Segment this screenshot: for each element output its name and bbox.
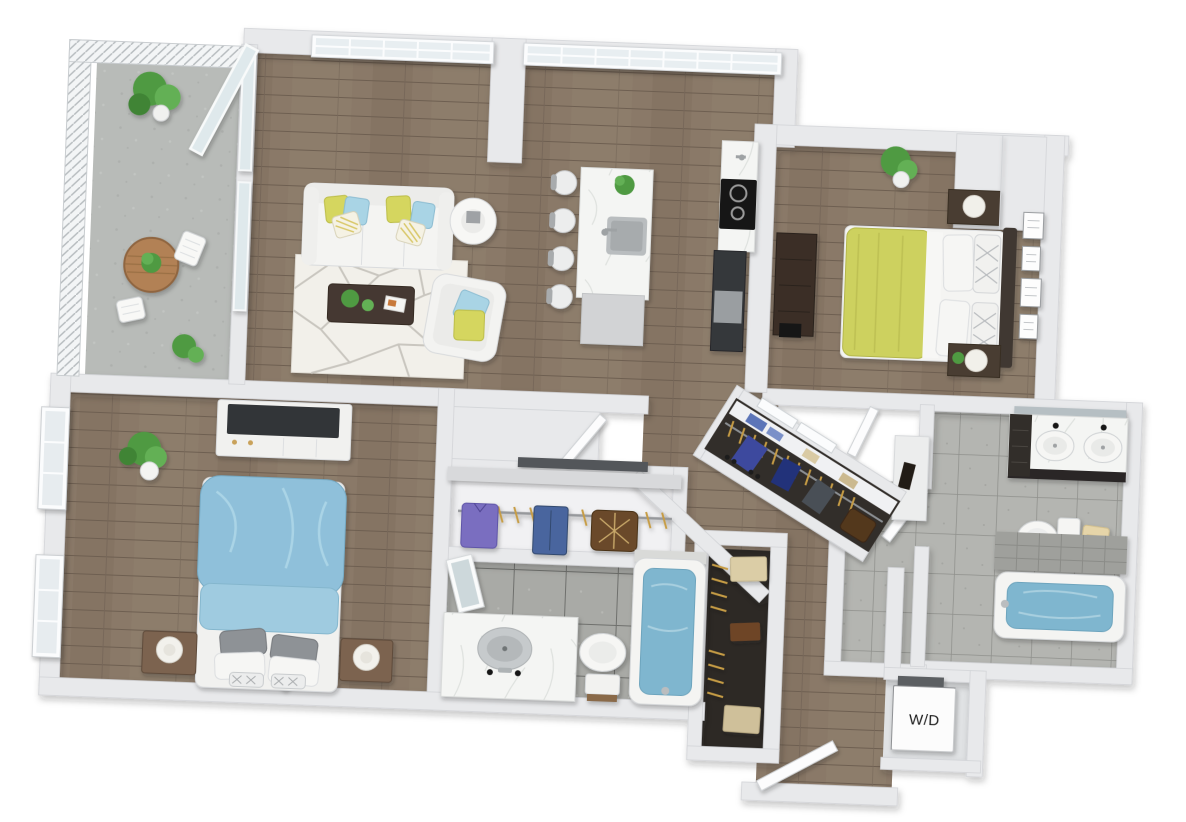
- blue-duvet-fold: [199, 583, 339, 634]
- sofa-arm-right: [436, 192, 454, 271]
- bed-pillow-white: [943, 235, 974, 291]
- dresser-item: [779, 323, 802, 338]
- master-bathtub: [994, 572, 1126, 643]
- tv-panel: [227, 404, 340, 438]
- wall-linen-south: [687, 746, 779, 764]
- folding-chair-2: [116, 296, 146, 323]
- oven-front: [713, 291, 742, 324]
- sofa-arm-left: [301, 187, 319, 266]
- railing-left: [57, 40, 92, 377]
- sofa: [301, 183, 454, 271]
- pillow-lattice: [229, 672, 264, 687]
- picture-frame: [1019, 314, 1038, 339]
- vanity-faucet: [498, 667, 512, 673]
- plant-pot: [140, 462, 159, 481]
- lamp-north: [963, 195, 986, 218]
- toilet-tray: [587, 694, 617, 702]
- apartment-plan: W/D: [28, 21, 1156, 815]
- tub-water: [1006, 582, 1114, 632]
- hanging-shirt: [461, 503, 499, 548]
- media-console: [216, 400, 352, 461]
- railing-top: [69, 40, 252, 69]
- washer-dryer-label: W/D: [909, 711, 940, 729]
- toilet-tank: [585, 674, 620, 695]
- bathroom2-vanity: [441, 612, 578, 701]
- cooktop: [719, 179, 757, 230]
- kitchen-island: [575, 167, 654, 346]
- storage-box: [730, 557, 766, 582]
- picture-frame: [1022, 246, 1041, 271]
- double-vanity: [1008, 414, 1128, 482]
- storage-box-2: [723, 705, 761, 734]
- plant-pot: [893, 171, 910, 188]
- floor-plan-render: W/D: [0, 0, 1186, 822]
- lamp-south: [965, 349, 988, 372]
- vanity-cabinet: [1008, 414, 1032, 477]
- master-bedroom-door-leaf: [847, 407, 878, 458]
- plant-pot: [153, 105, 170, 122]
- coffee-table: [327, 284, 414, 325]
- armchair: [421, 272, 508, 364]
- island-base: [581, 293, 645, 345]
- picture-frame: [1023, 212, 1044, 239]
- picture-frame: [1020, 278, 1041, 307]
- pillow-yellow-2: [386, 196, 411, 223]
- living-room-furniture: [291, 182, 511, 380]
- armchair-pillow-yellow: [454, 310, 485, 341]
- bathroom2-tub: [629, 550, 707, 707]
- bed-pillow-lattice: [973, 234, 1001, 293]
- pillow-lattice-2: [271, 674, 306, 689]
- floor-plan-svg: W/D: [0, 0, 1186, 822]
- linen-item: [730, 622, 761, 641]
- bedroom2-bed: [193, 475, 347, 692]
- side-table-item: [466, 211, 480, 224]
- tub2-water: [639, 568, 696, 696]
